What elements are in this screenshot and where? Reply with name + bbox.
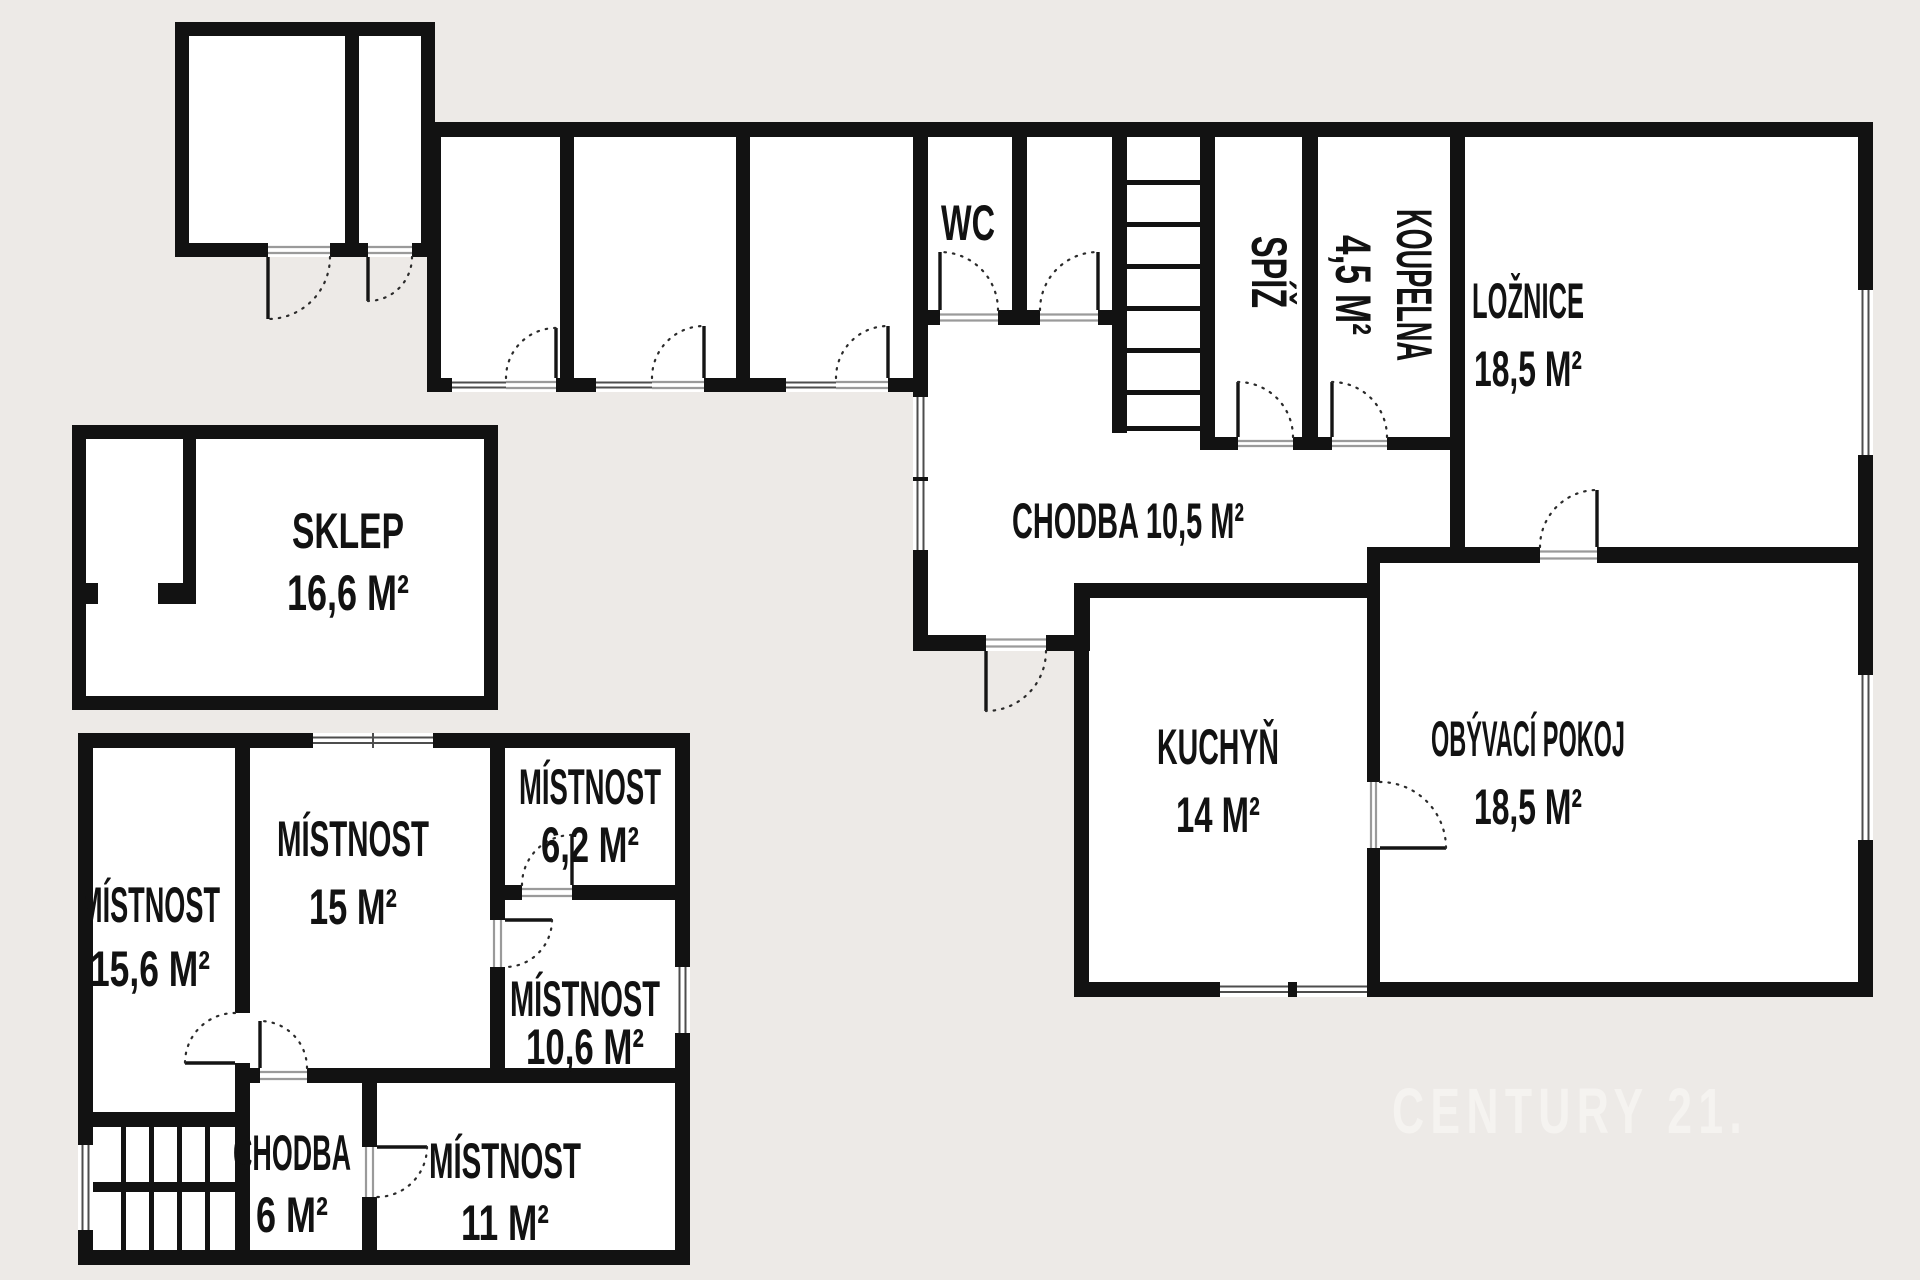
door-opening [506,378,556,392]
watermark-century21: CENTURY 21. [1392,1075,1748,1147]
window-symbol [1858,675,1873,840]
window-symbol [313,733,433,748]
svg-text:4,5 M²: 4,5 M² [1325,235,1381,335]
door-opening [490,920,505,967]
room-label-chodba: CHODBA 10,5 M² [1012,493,1244,549]
window-symbol [1220,982,1367,997]
door-opening [260,1068,307,1083]
door-opening [1540,547,1597,563]
door-opening [1040,310,1098,325]
room-label-sklep-area: 16,6 M² [287,565,409,621]
room-label-sklep-name: SKLEP [292,503,404,559]
window-symbol [675,967,690,1033]
door-opening [986,635,1046,651]
window-symbol [596,378,652,392]
door-opening [836,378,888,392]
door-opening [940,310,998,325]
room-label-chodba6-area: 6 M² [256,1187,328,1243]
room-label-m11-name: MÍSTNOST [429,1133,581,1189]
room-label-obyvaci-name: OBÝVACÍ POKOJ [1431,711,1625,767]
room-label-chodba6-name: CHODBA [233,1125,351,1181]
floor-plan-page: SKLEP 16,6 M² WC SPÍŽ KOUPELNA 4,5 M² LO… [0,0,1920,1280]
window-symbol [913,397,928,477]
window-symbol [913,481,928,550]
room-label-m156-name: MÍSTNOST [80,877,220,933]
room-label-m62-name: MÍSTNOST [519,759,661,815]
room-sklep [86,439,484,696]
room-label-m106-area: 10,6 M² [526,1019,644,1075]
floor-plan-drawing: SKLEP 16,6 M² WC SPÍŽ KOUPELNA 4,5 M² LO… [0,0,1920,1280]
room-outbuilding-left [189,36,345,243]
room-label-spiz: SPÍŽ [1241,236,1297,308]
room-label-kuchyn-area: 14 M² [1176,787,1260,843]
room-label-kuchyn-name: KUCHYŇ [1157,719,1279,775]
room-label-m62-area: 6,2 M² [541,817,639,873]
door-opening [652,378,704,392]
door-opening [1367,782,1380,848]
window-symbol [78,1145,93,1230]
door-opening [368,243,412,257]
window-symbol [786,378,836,392]
door-opening [235,1013,250,1063]
room-label-loznice-name: LOŽNICE [1472,273,1584,329]
door-opening [1238,437,1293,450]
room-label-m15-area: 15 M² [309,879,397,935]
room-label-loznice-area: 18,5 M² [1474,341,1582,397]
svg-text:SPÍŽ: SPÍŽ [1241,236,1297,308]
room-label-obyvaci-area: 18,5 M² [1474,779,1582,835]
room-label-m156-area: 15,6 M² [90,941,210,997]
room-outbuilding-right [359,36,421,243]
door-opening [362,1147,377,1197]
room-label-m11-area: 11 M² [461,1195,549,1251]
room-label-wc: WC [941,195,995,251]
window-symbol [452,378,506,392]
svg-text:KOUPELNA: KOUPELNA [1386,209,1442,361]
door-opening [268,243,330,257]
window-symbol [1858,290,1873,455]
door-opening [522,885,572,900]
room-label-m15-name: MÍSTNOST [277,811,429,867]
door-opening [1332,437,1387,450]
